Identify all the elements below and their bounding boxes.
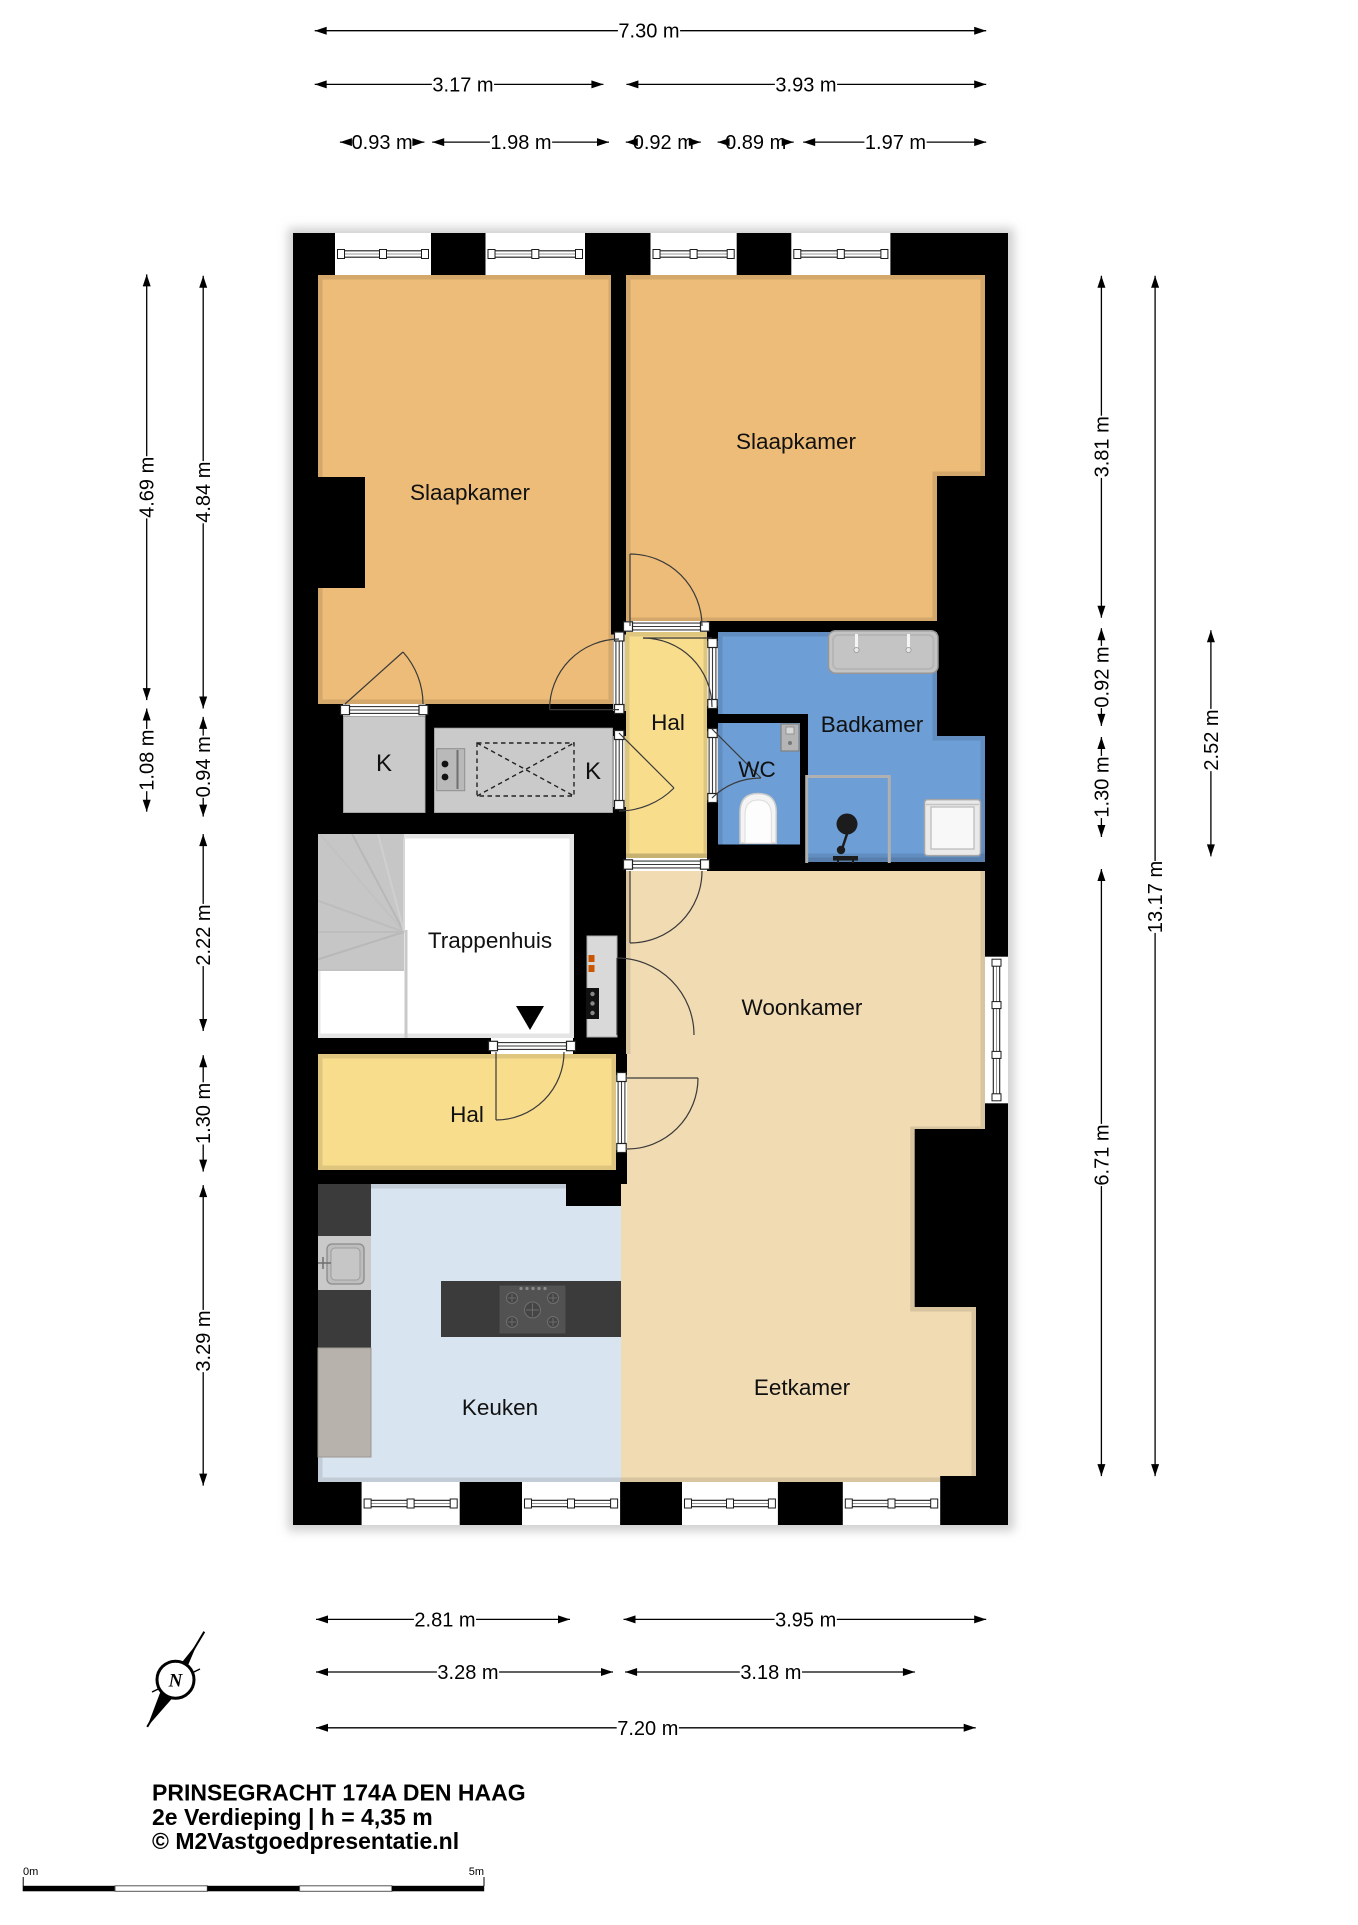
svg-text:4.84 m: 4.84 m: [193, 462, 215, 523]
svg-text:1.08 m: 1.08 m: [137, 730, 159, 791]
svg-text:Badkamer: Badkamer: [821, 712, 924, 737]
svg-text:4.69 m: 4.69 m: [137, 457, 159, 518]
svg-text:3.81 m: 3.81 m: [1091, 416, 1113, 477]
svg-text:WC: WC: [738, 757, 776, 782]
svg-text:7.30 m: 7.30 m: [618, 21, 679, 43]
svg-text:0.92 m: 0.92 m: [1091, 646, 1113, 707]
svg-text:Hal: Hal: [651, 710, 685, 735]
svg-text:7.20 m: 7.20 m: [617, 1718, 678, 1740]
svg-text:Slaapkamer: Slaapkamer: [736, 429, 857, 454]
svg-text:PRINSEGRACHT 174A DEN HAAG: PRINSEGRACHT 174A DEN HAAG: [152, 1780, 526, 1806]
svg-text:Eetkamer: Eetkamer: [754, 1375, 851, 1400]
svg-text:2.81 m: 2.81 m: [414, 1609, 475, 1631]
svg-text:Slaapkamer: Slaapkamer: [410, 480, 531, 505]
svg-text:2e Verdieping | h = 4,35 m: 2e Verdieping | h = 4,35 m: [152, 1804, 433, 1830]
svg-text:0.89 m: 0.89 m: [725, 132, 786, 154]
svg-text:1.98 m: 1.98 m: [490, 132, 551, 154]
svg-text:K: K: [585, 758, 601, 785]
svg-text:3.29 m: 3.29 m: [193, 1310, 215, 1371]
svg-text:0.93 m: 0.93 m: [352, 132, 413, 154]
svg-text:Keuken: Keuken: [462, 1395, 538, 1420]
svg-text:N: N: [168, 1671, 184, 1692]
svg-text:0.92 m: 0.92 m: [633, 132, 694, 154]
svg-text:0.94 m: 0.94 m: [193, 736, 215, 797]
svg-text:3.95 m: 3.95 m: [775, 1609, 836, 1631]
svg-text:3.93 m: 3.93 m: [775, 74, 836, 96]
svg-text:2.52 m: 2.52 m: [1201, 709, 1223, 770]
svg-text:2.22 m: 2.22 m: [193, 904, 215, 965]
svg-text:Hal: Hal: [450, 1102, 484, 1127]
svg-text:3.18 m: 3.18 m: [740, 1662, 801, 1684]
svg-text:0m: 0m: [23, 1866, 38, 1878]
svg-text:6.71 m: 6.71 m: [1091, 1124, 1113, 1185]
svg-text:13.17 m: 13.17 m: [1145, 861, 1167, 933]
svg-text:1.97 m: 1.97 m: [865, 132, 926, 154]
svg-text:1.30 m: 1.30 m: [1091, 756, 1113, 817]
svg-text:3.28 m: 3.28 m: [437, 1662, 498, 1684]
svg-text:Trappenhuis: Trappenhuis: [428, 928, 552, 953]
svg-text:5m: 5m: [469, 1866, 484, 1878]
svg-text:3.17 m: 3.17 m: [432, 74, 493, 96]
svg-text:Woonkamer: Woonkamer: [742, 995, 863, 1020]
svg-text:1.30 m: 1.30 m: [193, 1083, 215, 1144]
svg-text:K: K: [376, 750, 392, 777]
svg-text:© M2Vastgoedpresentatie.nl: © M2Vastgoedpresentatie.nl: [152, 1828, 459, 1854]
